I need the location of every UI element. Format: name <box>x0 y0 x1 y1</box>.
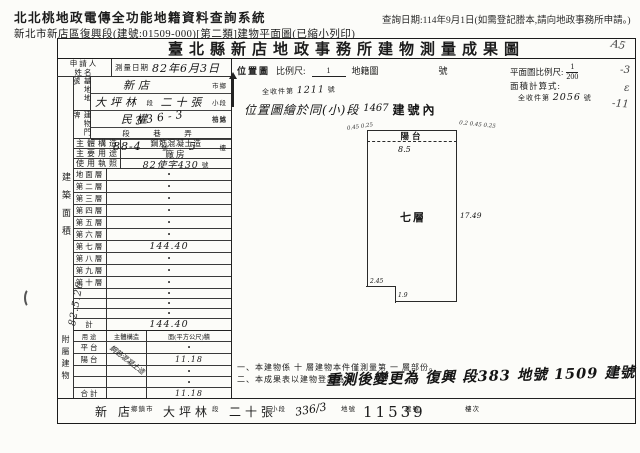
floor-row: 第十層• <box>74 277 231 289</box>
cadastral-no-label: 號 <box>439 64 448 77</box>
attached-header-row: 用途 主體構造 面(平方公尺)積 <box>74 331 231 342</box>
attached-row: • <box>74 377 231 388</box>
location-map-note: 位置圖繪於同(小)段 1467 建號內 <box>244 101 438 118</box>
punch-hole-mark <box>24 288 36 308</box>
floor-total-row: 計144.40 <box>74 319 231 331</box>
attached-row-balcony: 陽台 鋼筋混凝土造 11.18 <box>74 354 231 366</box>
survey-date-cell: 測量日期 82年6月3日 <box>112 59 231 76</box>
floor-area-table: 地面層• 第二層• 第三層• 第四層• 第五層• 第六層• 第七層144.40 … <box>74 169 231 331</box>
footer-section: 大坪林 <box>163 403 211 420</box>
floor-row-seventh: 第七層144.40 <box>74 241 231 253</box>
footer-town-suffix: 鄉鎮市 <box>131 403 154 413</box>
address-label: 建物門牌 <box>74 111 91 138</box>
location-note-no: 1467 <box>363 103 388 114</box>
applicant-label-cell: 申請人姓名 <box>57 59 112 76</box>
location-map-label: 位置圖 <box>237 64 270 77</box>
applicant-label: 申請人姓名 <box>69 59 99 77</box>
footer-floor-suffix: 樓次 <box>465 403 480 413</box>
site-subsection-suffix: 小段 <box>212 97 227 107</box>
floor-row: 第四層• <box>74 205 231 217</box>
plan-scale-fraction: 1 200 <box>566 63 578 82</box>
attached-building-table: 用途 主體構造 面(平方公尺)積 平台 • 陽台 鋼筋混凝土造 11.18 • <box>74 331 231 399</box>
document-page: 北北桃地政電傳全功能地籍資料查詢系統 新北市新店區復興段(建號:01509-00… <box>0 0 640 453</box>
receipt-1-no: 1211 <box>297 84 326 96</box>
site-city-suffix: 市鄉 <box>212 80 227 90</box>
dim-width: 8.5 <box>398 145 411 154</box>
floor-row: 地面層• <box>74 169 231 181</box>
attached-col-use: 用途 <box>74 331 107 341</box>
footer-strip: 新 店 鄉鎮市 大坪林 段 二十張 小段 336/3 地號 11539 建號 樓… <box>57 398 636 424</box>
floor-row: 第三層• <box>74 193 231 205</box>
dim-notch-width: 2.45 <box>370 278 383 285</box>
attached-col-area: 面(平方公尺)積 <box>147 331 231 341</box>
receipt-2-no: 2056 <box>553 92 581 103</box>
margin-scribble: ε <box>624 82 630 94</box>
location-scale-label: 比例尺: <box>276 64 306 77</box>
license-row: 使用執照 82使字430 號 <box>74 159 231 169</box>
dim-height: 17.49 <box>460 211 481 220</box>
attached-side-label: 附屬建物 <box>60 335 71 383</box>
footer-building-no-suffix: 建號 <box>405 403 420 413</box>
query-date-text: 查詢日期:114年9月1日(如需登記謄本,請向地政事務所申請。) <box>382 12 631 26</box>
license-label: 使用執照 <box>74 159 121 168</box>
dim-notch-height: 1.9 <box>398 292 408 299</box>
footer-subsection: 二十張 <box>229 403 277 420</box>
balcony-label: 陽台 <box>400 130 423 142</box>
floor-row: 第八層• <box>74 253 231 265</box>
footer-lot-suffix: 地號 <box>341 403 356 413</box>
site-section-row: 大坪林 段 二十張 小段 <box>91 93 231 110</box>
site-section-suffix: 段 <box>147 97 155 107</box>
site-section-value: 大坪林 <box>95 94 140 110</box>
floor-row: • <box>74 299 231 309</box>
license-suffix: 號 <box>202 159 210 169</box>
plan-scale: 平面圖比例尺: 1 200 <box>510 63 578 82</box>
system-title: 北北桃地政電傳全功能地籍資料查詢系統 <box>14 7 266 26</box>
address-street-suffix: 街路 <box>212 114 227 124</box>
attached-col-structure: 主體構造 <box>107 331 147 341</box>
floor-row: 第六層• <box>74 229 231 241</box>
floor-row: 第五層• <box>74 217 231 229</box>
footer-town: 新 店 <box>95 403 134 420</box>
floor-row: • <box>74 309 231 319</box>
survey-date-value: 82年6月3日 <box>152 60 220 76</box>
usage-label: 主要用途 <box>74 149 121 158</box>
footer-lot: 336/3 <box>294 400 327 418</box>
floor-row: 第九層• <box>74 265 231 277</box>
survey-date-label: 測量日期 <box>115 62 149 73</box>
structure-label: 主體構造 <box>74 139 121 148</box>
form-title: 臺北縣新店地政事務所建物測量成果圖 <box>168 38 525 59</box>
margin-scribble: -11 <box>612 97 630 110</box>
floor-area-side-label: 建築面積 <box>60 172 73 244</box>
site-lot-block: 基地地號 新店 市鄉 大坪林 段 二十張 小段 336-3 地號 <box>74 77 231 111</box>
margin-scribble: -3 <box>620 64 630 76</box>
info-table: 建築面積 附屬建物 申請人姓名 測量日期 82年6月3日 基地地號 新店 市鄉 … <box>57 59 232 398</box>
side-label-column: 建築面積 附屬建物 <box>57 77 74 398</box>
site-lot-label: 基地地號 <box>74 77 91 110</box>
attached-row: 平台 • <box>74 342 231 354</box>
site-city-value: 新店 <box>123 77 153 93</box>
receipt-number-2: 全收件第 2056 號 <box>518 92 592 103</box>
plan-notch-outline <box>366 286 396 303</box>
room-label: 七層 <box>400 209 426 225</box>
form-title-bar: 臺北縣新店地政事務所建物測量成果圖 <box>57 38 636 59</box>
north-arrow-icon <box>229 72 237 108</box>
cadastral-label: 地籍圖 <box>352 64 379 77</box>
attached-row: • <box>74 366 231 377</box>
site-city-row: 新店 市鄉 <box>91 77 231 93</box>
footer-subsection-suffix: 小段 <box>271 403 286 413</box>
area-calc-label: 面積計算式: <box>510 80 561 92</box>
plan-balcony-outline: 陽台 <box>367 130 457 142</box>
floor-row: • <box>74 289 231 299</box>
footer-section-suffix: 段 <box>212 403 220 413</box>
location-scale-fraction: 1 <box>312 67 346 77</box>
floor-row: 第二層• <box>74 181 231 193</box>
applicant-survey-row: 申請人姓名 測量日期 82年6月3日 <box>57 59 231 77</box>
location-map-header: 位置圖 比例尺: 1 地籍圖 號 <box>237 64 448 77</box>
punch-hole-mark <box>0 128 12 154</box>
